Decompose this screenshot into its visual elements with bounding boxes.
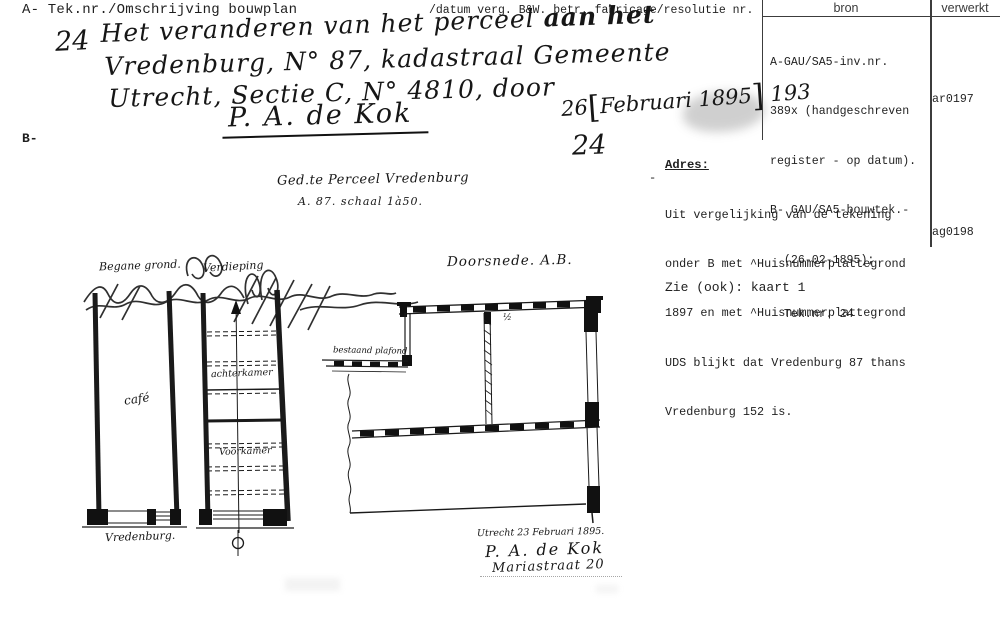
faint-dotted-line [480,576,622,577]
section-half-mark: ½ [503,313,512,323]
archive-card-scan: A- Tek.nr./Omschrijving bouwplan /datum … [0,0,1000,625]
plan-begane-grond [82,291,187,527]
doorsnede-section [322,296,603,523]
street-label-vredenburg: Vredenburg. [105,529,176,544]
section-title-doorsnede: Doorsnede. A.B. [447,252,573,270]
room-label-achterkamer: achterkamer [211,367,273,380]
drawing-scale: A. 87. schaal 1à50. [298,195,423,208]
scan-smudge [596,585,618,593]
scan-smudge [285,578,340,591]
signature-place-date: Utrecht 23 Februari 1895. [477,526,604,539]
note-bestaand-plafond: bestaand plafond [333,345,408,356]
plan-verdieping [196,290,294,556]
room-label-voorkamer: Voorkamer [219,445,272,458]
